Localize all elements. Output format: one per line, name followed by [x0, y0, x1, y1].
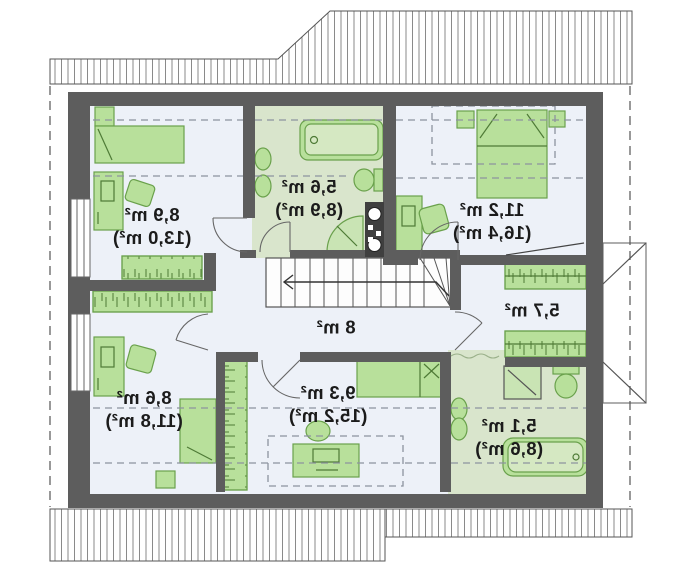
- room-area-label: 8,9 m² (13,0 m²): [113, 203, 192, 249]
- floor-plan-drawing: [0, 0, 700, 575]
- window-left-upper: [71, 199, 90, 277]
- double-bed: [477, 110, 547, 198]
- bathtub-top: [300, 120, 383, 160]
- toilet-top: [354, 169, 383, 191]
- roof-eave-top: [50, 11, 632, 84]
- sink-top-1: [255, 148, 271, 170]
- toilet-bottom: [553, 366, 579, 398]
- wardrobe-bottom-center: [224, 360, 247, 490]
- window-left-lower: [71, 314, 90, 391]
- room-area-label: 5,6 m² (8,9 m²): [275, 175, 343, 221]
- wardrobe-top-left: [122, 256, 202, 279]
- bed-bottom-left: [180, 399, 216, 463]
- desk-top-right: [396, 196, 422, 256]
- closet-shelf-bottom: [505, 331, 586, 357]
- closet-shelf-top: [505, 263, 586, 289]
- room-area-label: 8 m²: [316, 316, 355, 339]
- room-area-label: 11,2 m² (16,4 m²): [453, 198, 532, 244]
- desk-bottom-center: [293, 444, 359, 477]
- dormer-roof: [603, 243, 646, 403]
- vent-shaft: [365, 202, 384, 257]
- wardrobe-bottom-left: [93, 291, 212, 312]
- room-area-label: 8,6 m² (11,8 m²): [105, 386, 183, 432]
- shower-bottom: [504, 366, 541, 399]
- roof-eave-bottom: [50, 509, 632, 561]
- room-area-label: 5,1 m² (8,6 m²): [475, 414, 543, 460]
- room-area-label: 9,3 m² (15,2 m²): [289, 381, 368, 427]
- nightstand-right: [549, 111, 565, 127]
- nightstand-bottom-left: [156, 471, 175, 488]
- sink-top-2: [255, 175, 271, 197]
- floor-plan: 8,9 m² (13,0 m²) 5,6 m² (8,9 m²) 11,2 m²…: [0, 0, 700, 575]
- room-area-label: 5,7 m²: [504, 299, 559, 322]
- bed-bottom-center: [357, 360, 443, 397]
- staircase: [266, 258, 452, 307]
